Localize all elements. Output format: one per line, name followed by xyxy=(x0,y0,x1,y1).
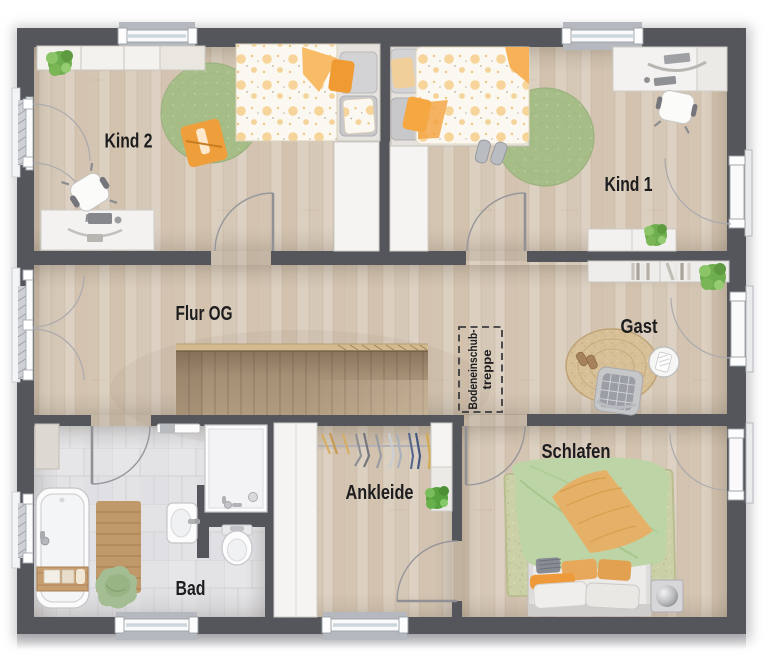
svg-text:Kind 2: Kind 2 xyxy=(105,131,153,153)
svg-text:treppe: treppe xyxy=(480,349,494,389)
svg-text:Flur OG: Flur OG xyxy=(176,303,233,325)
svg-text:Schlafen: Schlafen xyxy=(542,441,611,463)
svg-text:Ankleide: Ankleide xyxy=(346,482,414,504)
svg-text:Kind 1: Kind 1 xyxy=(605,174,653,196)
svg-text:Gast: Gast xyxy=(621,316,658,338)
svg-text:Bad: Bad xyxy=(176,578,206,600)
svg-text:Bodeneinschub-: Bodeneinschub- xyxy=(466,330,480,410)
